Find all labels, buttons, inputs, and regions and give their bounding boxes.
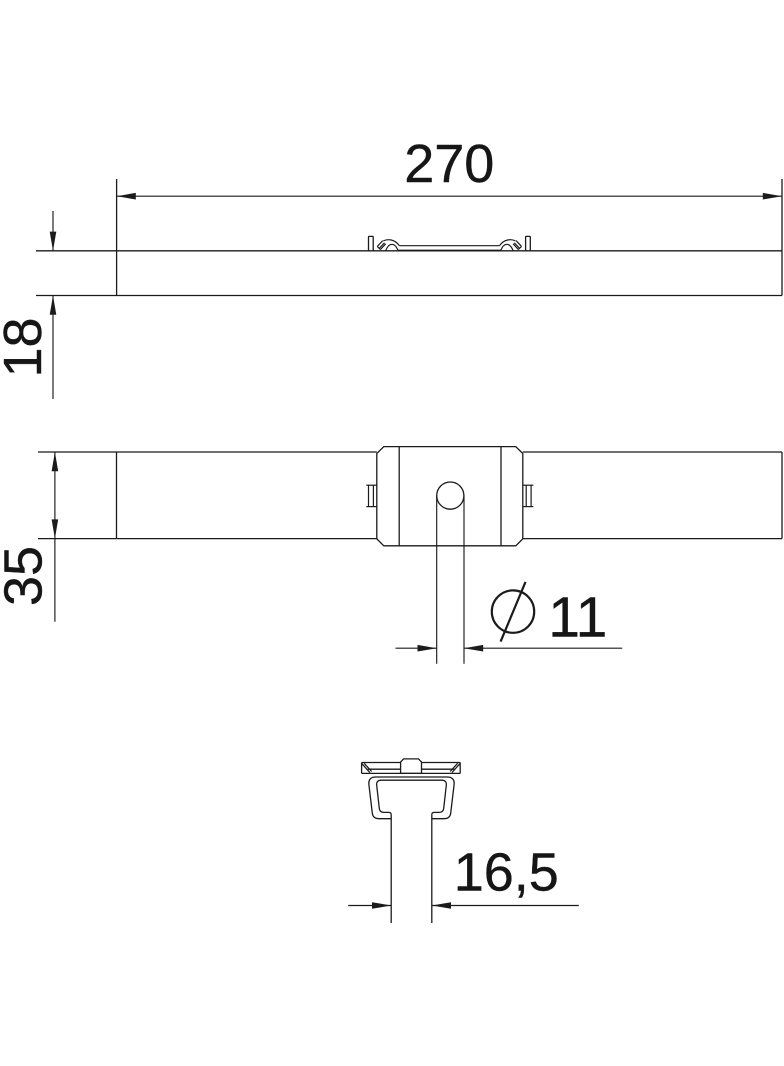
svg-text:35: 35	[0, 546, 54, 606]
svg-text:11: 11	[548, 585, 607, 649]
svg-text:18: 18	[0, 317, 53, 377]
svg-text:16,5: 16,5	[454, 843, 559, 903]
svg-text:270: 270	[404, 134, 494, 194]
